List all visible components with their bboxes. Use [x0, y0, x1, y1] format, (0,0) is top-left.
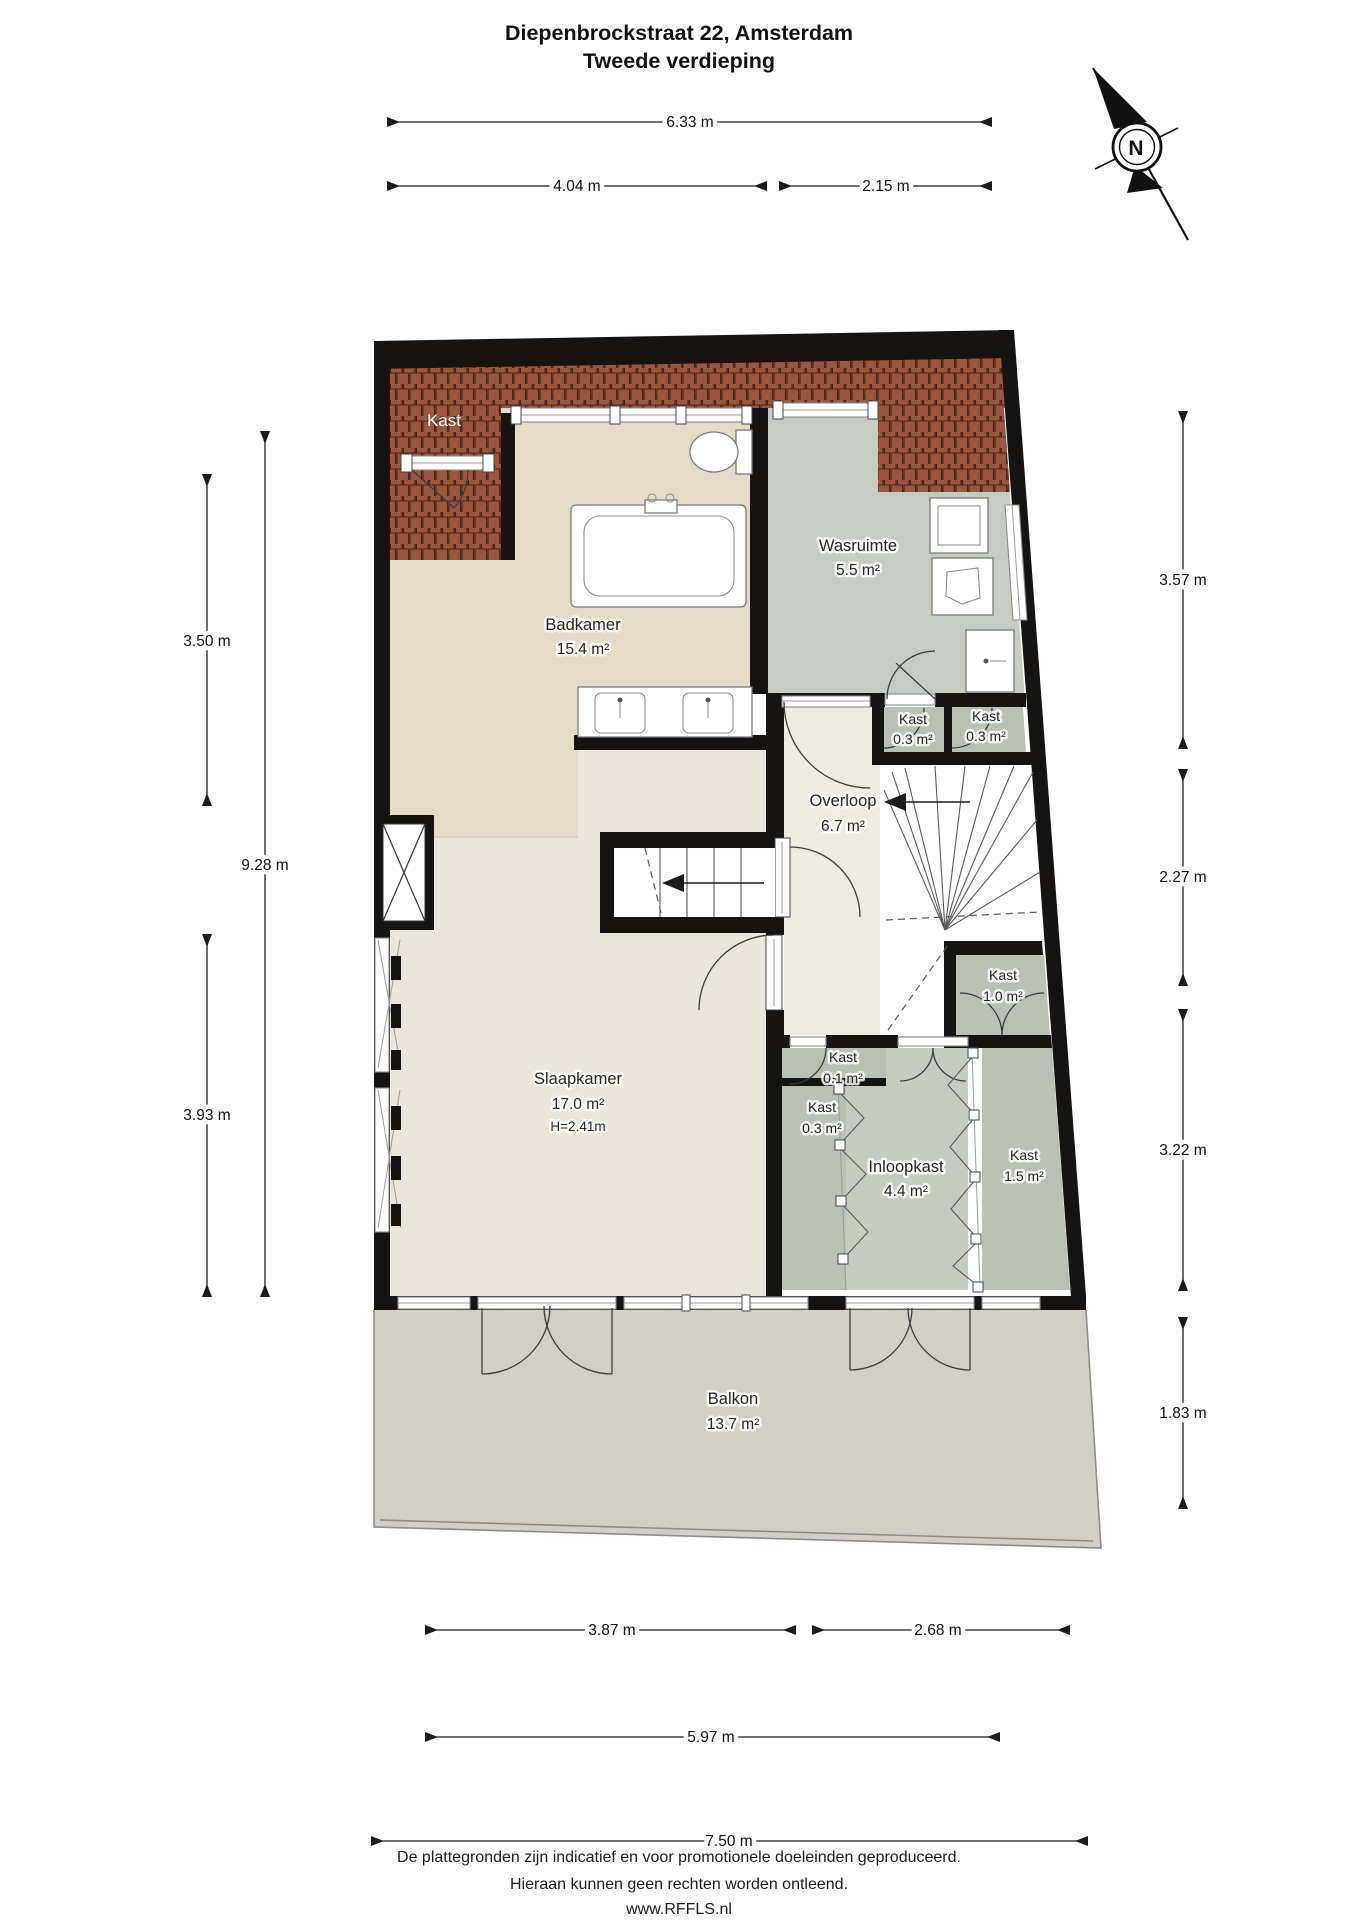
- slaapkamer-label: Slaapkamer: [534, 1070, 623, 1088]
- kast-top-b-label: Kast: [972, 708, 1000, 724]
- dim-label: 4.04 m: [553, 178, 600, 195]
- overloop-area: 6.7 m²: [821, 818, 865, 835]
- slaapkamer-left-window-2: [375, 1088, 401, 1232]
- slaapkamer-height: H=2.41m: [550, 1119, 605, 1134]
- footer-disclaimer: De plattegronden zijn indicatief en voor…: [397, 1849, 961, 1918]
- dim-label: 7.50 m: [705, 1833, 752, 1850]
- slaapkamer-area: 17.0 m²: [552, 1096, 605, 1113]
- dryer: [932, 558, 993, 615]
- dim-bottom-750: 7.50 m: [372, 1833, 1087, 1850]
- wasruimte-sink: [966, 630, 1014, 692]
- badkamer-top-window: [511, 406, 752, 424]
- dim-label: 2.27 m: [1159, 869, 1206, 886]
- compass-north-icon: N: [1093, 68, 1188, 240]
- badkamer-label: Badkamer: [545, 616, 621, 634]
- footer-line-1: De plattegronden zijn indicatief en voor…: [397, 1849, 961, 1866]
- kast-03-laag-area: 0.3 m²: [802, 1120, 842, 1136]
- dim-right-227: 2.27 m: [1159, 770, 1206, 985]
- wall-overloop-left-a: [766, 694, 784, 838]
- overloop-label: Overloop: [810, 792, 877, 810]
- wall-stair-left: [600, 832, 614, 933]
- wall-inloopkast-top: [968, 1035, 988, 1048]
- dim-left-928: 9.28 m: [241, 432, 288, 1296]
- wall-slaapkamer-right-lower: [766, 1048, 782, 1296]
- dim-label: 3.50 m: [183, 633, 230, 650]
- dim-label: 3.93 m: [183, 1107, 230, 1124]
- dim-label: 3.57 m: [1159, 572, 1206, 589]
- kast-01-label: Kast: [829, 1049, 857, 1065]
- title-line-1: Diepenbrockstraat 22, Amsterdam: [505, 21, 853, 45]
- roof-kast-area: [386, 408, 501, 560]
- wall-badkamer-wasruimte: [750, 408, 768, 694]
- dim-label: 5.97 m: [687, 1729, 734, 1746]
- balkon-window-1: [398, 1297, 470, 1309]
- title-line-2: Tweede verdieping: [583, 49, 775, 73]
- dim-bottom-268: 2.68 m: [813, 1622, 1069, 1639]
- balkon-label: Balkon: [708, 1390, 758, 1408]
- balkon-area: 13.7 m²: [707, 1416, 760, 1433]
- wall-corridor-bottom-b: [826, 1035, 898, 1048]
- kast-03-laag-floor: [782, 1086, 846, 1290]
- dim-right-357: 3.57 m: [1159, 412, 1206, 748]
- wall-kast10-top: [944, 941, 1043, 955]
- dim-left-350: 3.50 m: [183, 475, 230, 805]
- footer-website: www.RFFLS.nl: [625, 1901, 732, 1918]
- wall-kastrow-mid: [944, 707, 952, 753]
- roof-kast-label: Kast: [427, 411, 461, 430]
- kast-top-a-label: Kast: [899, 711, 927, 727]
- kast-01-area: 0.1 m²: [823, 1070, 863, 1086]
- footer-line-2: Hieraan kunnen geen rechten worden ontle…: [510, 1876, 848, 1893]
- wasruimte-label: Wasruimte: [819, 537, 897, 555]
- wall-kast10-left: [944, 941, 956, 1048]
- dim-bottom-597: 5.97 m: [426, 1729, 999, 1746]
- floorplan-page: Diepenbrockstraat 22, Amsterdam Tweede v…: [0, 0, 1358, 1920]
- page-title: Diepenbrockstraat 22, Amsterdam Tweede v…: [505, 21, 853, 73]
- dim-label: 9.28 m: [241, 857, 288, 874]
- slaapkamer-left-window-1: [375, 938, 401, 1072]
- straight-staircase: [614, 848, 775, 917]
- kast-top-a-area: 0.3 m²: [893, 731, 933, 747]
- dim-right-322: 3.22 m: [1159, 1010, 1206, 1290]
- wall-roofkast: [501, 413, 515, 560]
- wall-stair-top: [600, 832, 782, 848]
- shaft: [374, 815, 434, 930]
- kast-15-area: 1.5 m²: [1004, 1168, 1044, 1184]
- washing-machine: [930, 498, 988, 553]
- overloop-floor: [784, 694, 880, 1035]
- dim-label: 3.87 m: [588, 1622, 635, 1639]
- wall-corridor-bottom-a: [766, 1035, 790, 1048]
- wasruimte-area: 5.5 m²: [836, 562, 880, 579]
- wasruimte-top-window: [773, 401, 878, 419]
- dim-label: 2.68 m: [914, 1622, 961, 1639]
- dim-label: 2.15 m: [862, 178, 909, 195]
- dim-label: 1.83 m: [1159, 1405, 1206, 1422]
- kast-10-label: Kast: [989, 967, 1017, 983]
- dim-top-633: 6.33 m: [388, 114, 991, 131]
- compass-north-label: N: [1128, 137, 1143, 160]
- inloopkast-area: 4.4 m²: [884, 1183, 928, 1200]
- dim-right-183: 1.83 m: [1159, 1318, 1206, 1508]
- kast-15-label: Kast: [1010, 1147, 1038, 1163]
- balkon-window-3: [982, 1297, 1040, 1309]
- roof-wasruimte-area: [878, 382, 1010, 492]
- kast-10-area: 1.0 m²: [983, 988, 1023, 1004]
- wall-wasruimte-bottom-r: [935, 693, 1026, 707]
- dim-label: 6.33 m: [666, 114, 713, 131]
- floor-plan: Kast Badkamer 15.4 m² Wasruimte 5.5 m² K…: [374, 330, 1101, 1548]
- dim-left-393: 3.93 m: [183, 935, 230, 1296]
- floorplan-canvas: Diepenbrockstraat 22, Amsterdam Tweede v…: [0, 0, 1358, 1920]
- wall-kastrow-bottom: [872, 752, 1036, 765]
- badkamer-area: 15.4 m²: [557, 641, 610, 658]
- balkon-window-2: [624, 1295, 808, 1311]
- kast-03-laag-label: Kast: [808, 1099, 836, 1115]
- wall-stair-bottom: [600, 917, 782, 933]
- inloopkast-label: Inloopkast: [868, 1158, 944, 1176]
- bathtub: [571, 494, 746, 607]
- kast-top-b-area: 0.3 m²: [966, 728, 1006, 744]
- double-sink-vanity: [578, 687, 752, 737]
- dim-bottom-387: 3.87 m: [426, 1622, 795, 1639]
- toilet: [690, 430, 752, 474]
- dim-label: 3.22 m: [1159, 1142, 1206, 1159]
- dim-top-215: 2.15 m: [780, 178, 991, 195]
- dim-top-404: 4.04 m: [388, 178, 766, 195]
